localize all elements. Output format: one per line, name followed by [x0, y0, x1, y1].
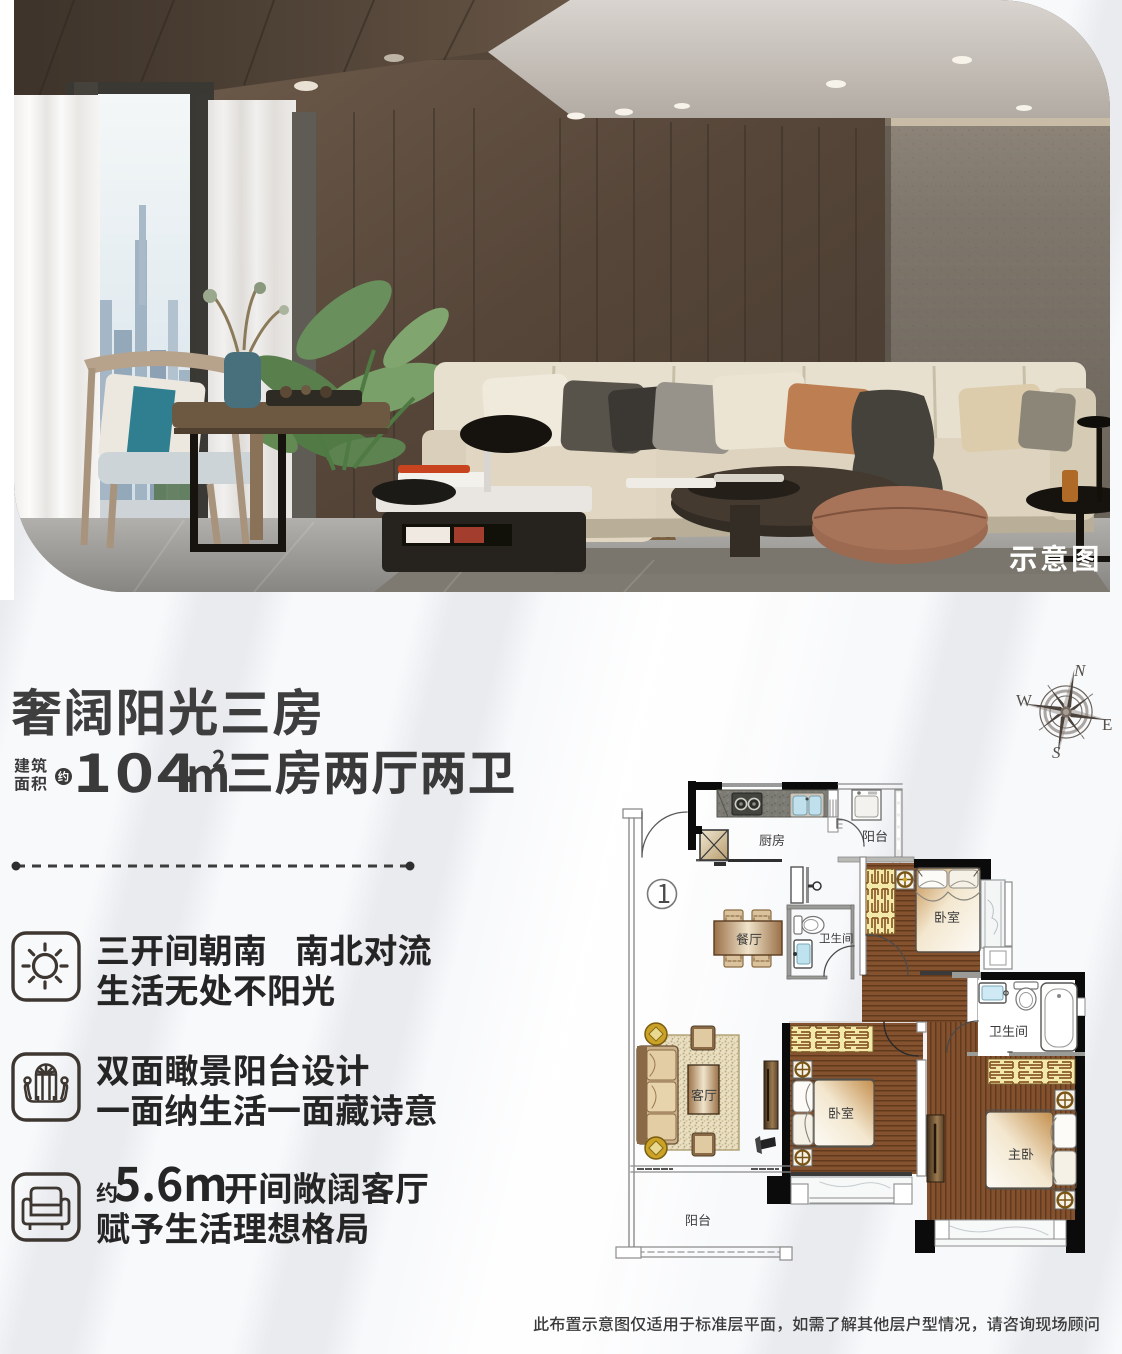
svg-text:S: S	[1052, 743, 1061, 762]
svg-text:E: E	[1102, 715, 1112, 734]
svg-text:W: W	[1016, 691, 1033, 710]
svg-text:N: N	[1073, 661, 1087, 680]
